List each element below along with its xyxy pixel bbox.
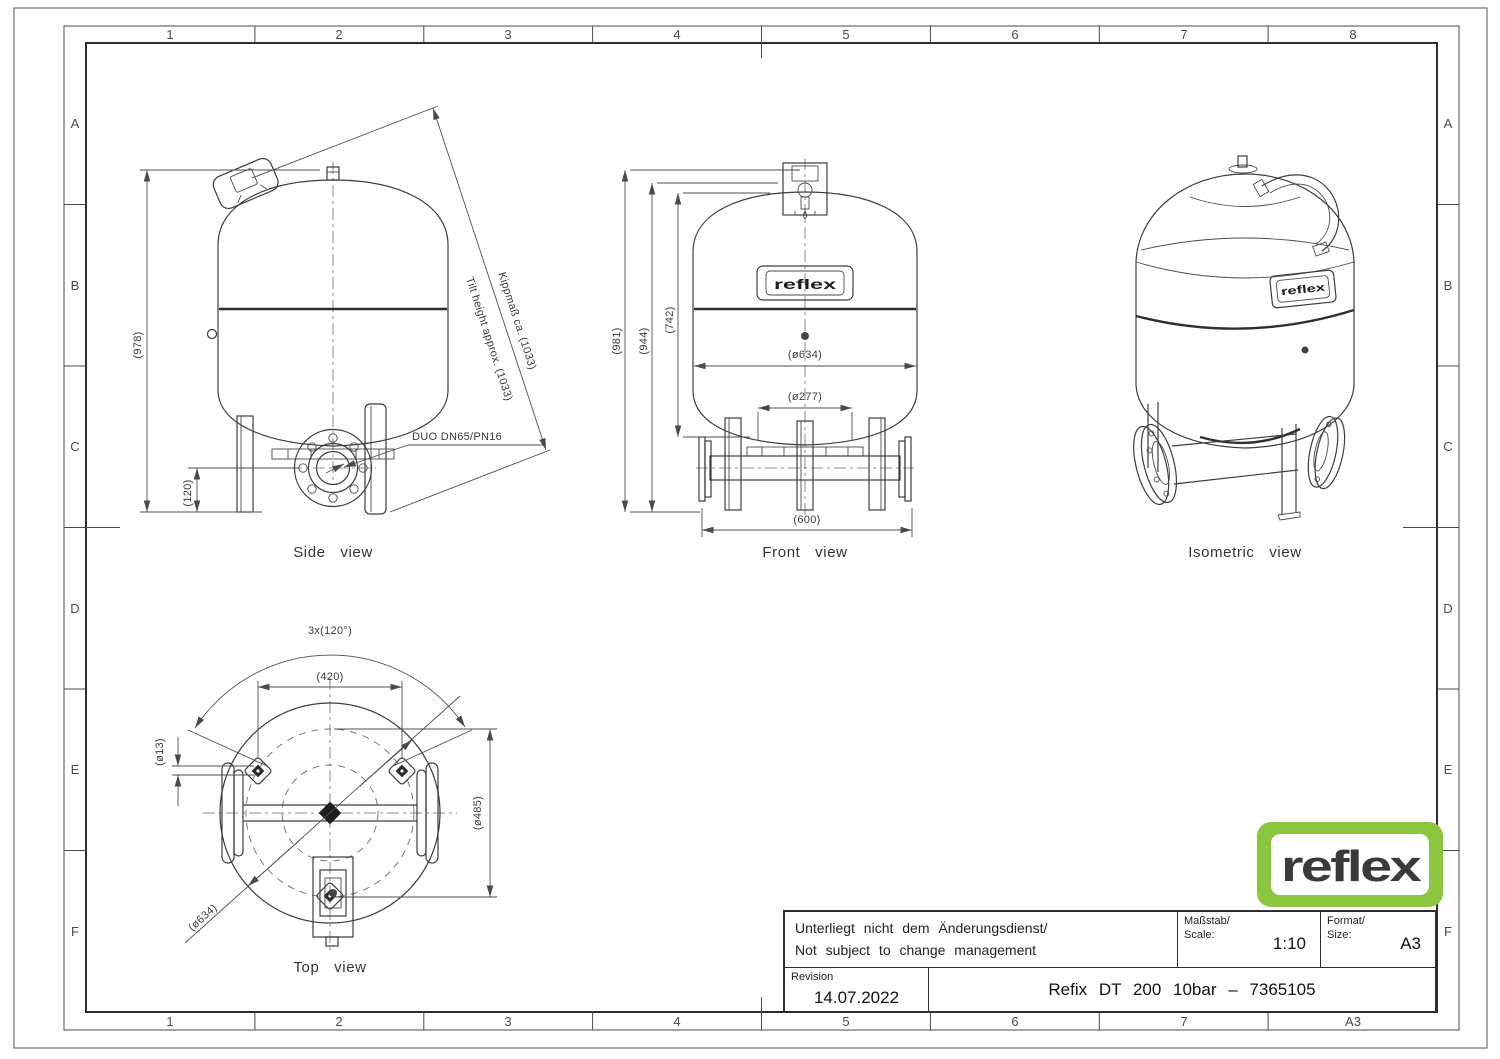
- connection-label: DUO DN65/PN16: [412, 431, 502, 443]
- top-handle: [1253, 175, 1339, 256]
- grid-col-label: 2: [335, 27, 342, 42]
- tank-outline: [1136, 174, 1354, 448]
- grid-row-label: E: [71, 762, 80, 777]
- grid-col-label: 6: [1011, 1014, 1018, 1029]
- front-dimensions: (981) (944) (742) (ø634) (ø277) (600): [611, 170, 916, 537]
- grid-row-label: B: [1444, 278, 1453, 293]
- grid-col-label: 4: [673, 1014, 680, 1029]
- grid-col-label: 1: [166, 27, 173, 42]
- nameplate-text: reflex: [774, 276, 836, 292]
- front-view: reflex: [611, 158, 917, 561]
- grid-col-label: A3: [1345, 1014, 1361, 1029]
- revision-label: Revision: [791, 971, 922, 985]
- format-cell: Format/ Size: A3: [1321, 912, 1435, 967]
- dim-leg-angle: 3x(120°): [308, 625, 352, 637]
- grid-col-label: 5: [842, 27, 849, 42]
- change-note-de: Unterliegt nicht dem Änderungsdienst/: [795, 918, 1167, 940]
- grid-row-label: C: [70, 439, 79, 454]
- change-note-en: Not subject to change management: [795, 940, 1167, 962]
- reflex-logo: reflex: [1257, 822, 1443, 907]
- dim-total-height: (981): [611, 327, 623, 354]
- revision-value: 14.07.2022: [785, 988, 928, 1008]
- grid-col-label: 2: [335, 1014, 342, 1029]
- grid-col-label: 3: [504, 1014, 511, 1029]
- grid-row-label: F: [1444, 924, 1452, 939]
- format-value: A3: [1400, 934, 1421, 954]
- scale-label-de: Maßstab/: [1184, 915, 1314, 929]
- grid-col-label: 1: [166, 1014, 173, 1029]
- front-view-caption: Front view: [762, 544, 847, 561]
- grid-col-label: 5: [842, 1014, 849, 1029]
- scale-value: 1:10: [1273, 934, 1306, 954]
- drawing-sheet: 1 2 3 4 5 6 7 8 1 2 3 4 5 6 7 A3 A B C D…: [0, 0, 1500, 1059]
- scale-cell: Maßstab/ Scale: 1:10: [1178, 912, 1321, 967]
- nameplate-text: reflex: [1281, 282, 1327, 299]
- grid-col-label: 4: [673, 27, 680, 42]
- revision-cell: Revision 14.07.2022: [785, 968, 929, 1011]
- grid-row-label: D: [1443, 601, 1452, 616]
- format-label-de: Format/: [1327, 915, 1429, 929]
- grid-col-label: 3: [504, 27, 511, 42]
- dim-vessel-height: (944): [638, 327, 650, 354]
- sensor-port: [801, 332, 809, 340]
- leg-pad: [244, 757, 272, 785]
- grid-col-label: 7: [1180, 27, 1187, 42]
- dim-diameter: (ø634): [186, 902, 219, 934]
- nameplate: reflex: [1270, 270, 1337, 309]
- dim-base-width: (600): [793, 514, 820, 526]
- dim-inner-diameter: (ø277): [788, 391, 822, 403]
- grid-row-label: E: [1444, 762, 1453, 777]
- dim-leg-spacing: (420): [316, 671, 343, 683]
- valve-cover: [211, 156, 281, 212]
- dim-port-height: (120): [182, 479, 194, 506]
- grid-row-label: C: [1443, 439, 1452, 454]
- technical-drawing: 1 2 3 4 5 6 7 8 1 2 3 4 5 6 7 A3 A B C D…: [0, 0, 1500, 1059]
- isometric-view-caption: Isometric view: [1188, 544, 1301, 561]
- grid-row-label: A: [1444, 116, 1453, 131]
- leg-pad: [388, 757, 416, 785]
- grid-col-label: 6: [1011, 27, 1018, 42]
- top-view-caption: Top view: [293, 959, 366, 976]
- side-view-caption: Side view: [293, 544, 373, 561]
- nameplate: reflex: [757, 266, 853, 300]
- logo-text: reflex: [1281, 842, 1422, 891]
- side-view: (978) (120) Kippmaß ca. (1033) Tilt heig…: [132, 106, 550, 561]
- grid-col-label: 7: [1180, 1014, 1187, 1029]
- dim-height: (978): [132, 331, 144, 358]
- grid-row-label: A: [71, 116, 80, 131]
- grid-row-label: F: [71, 924, 79, 939]
- change-note: Unterliegt nicht dem Änderungsdienst/ No…: [785, 912, 1178, 967]
- dim-tilt-de: Kippmaß ca. (1033): [495, 271, 538, 372]
- isometric-view: reflex Isomet: [1127, 156, 1354, 561]
- legs-and-pipe: [1127, 402, 1350, 520]
- side-port: [208, 330, 217, 339]
- grid-col-label: 8: [1349, 27, 1356, 42]
- sensor-port: [1302, 347, 1309, 354]
- drawing-title: Refix DT 200 10bar – 7365105: [929, 968, 1435, 1011]
- grid-row-label: D: [70, 601, 79, 616]
- grid-row-label: B: [71, 278, 80, 293]
- dim-leg-circle: (ø485): [472, 796, 484, 830]
- sump: [1200, 429, 1300, 443]
- bottom-bracket: [313, 857, 353, 946]
- grid-ticks: [64, 26, 1459, 1030]
- top-view: 3x(120°) (420) (ø13) (ø634) (ø485) Top v…: [154, 625, 497, 976]
- dim-hole: (ø13): [154, 738, 166, 766]
- dim-body-height: (742): [664, 306, 676, 333]
- title-block: Unterliegt nicht dem Änderungsdienst/ No…: [783, 910, 1437, 1013]
- dim-diameter: (ø634): [788, 349, 822, 361]
